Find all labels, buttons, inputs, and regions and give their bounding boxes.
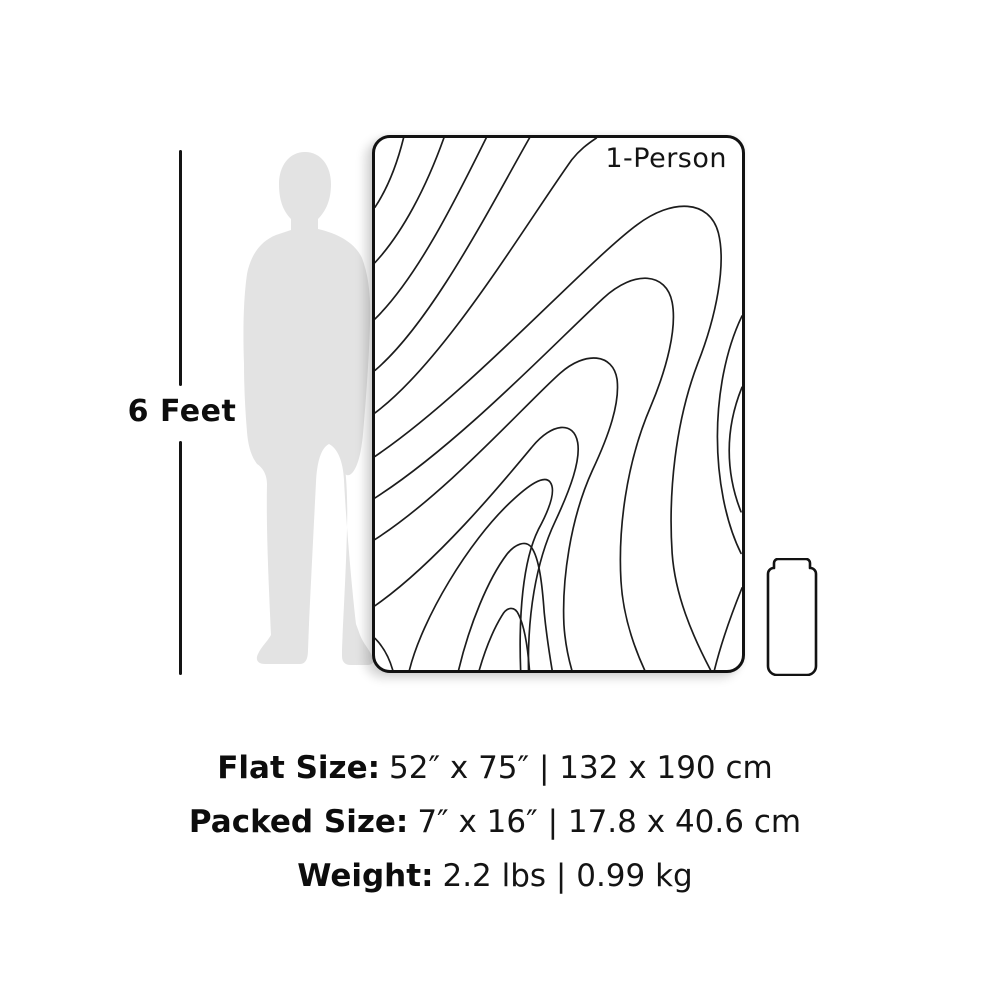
spec-weight-label: Weight: [297,858,433,894]
height-scale-line-bottom [179,441,182,675]
spec-list: Flat Size:52″ x 75″ | 132 x 190 cm Packe… [0,741,990,903]
spec-flat-size-value: 52″ x 75″ | 132 x 190 cm [389,750,773,786]
spec-flat-size-label: Flat Size: [217,750,380,786]
height-scale-line-top [179,150,182,386]
spec-packed-size-value: 7″ x 16″ | 17.8 x 40.6 cm [417,804,801,840]
spec-weight-value: 2.2 lbs | 0.99 kg [442,858,692,894]
size-guide-infographic: 6 Feet [0,0,990,990]
packed-bag-icon [765,558,819,676]
topo-pattern [375,138,742,670]
person-silhouette-icon [233,150,375,672]
spec-weight: Weight:2.2 lbs | 0.99 kg [0,849,990,903]
spec-flat-size: Flat Size:52″ x 75″ | 132 x 190 cm [0,741,990,795]
blanket-graphic: 1-Person [372,135,745,673]
spec-packed-size-label: Packed Size: [189,804,408,840]
spec-packed-size: Packed Size:7″ x 16″ | 17.8 x 40.6 cm [0,795,990,849]
blanket-capacity-badge: 1-Person [605,143,727,174]
